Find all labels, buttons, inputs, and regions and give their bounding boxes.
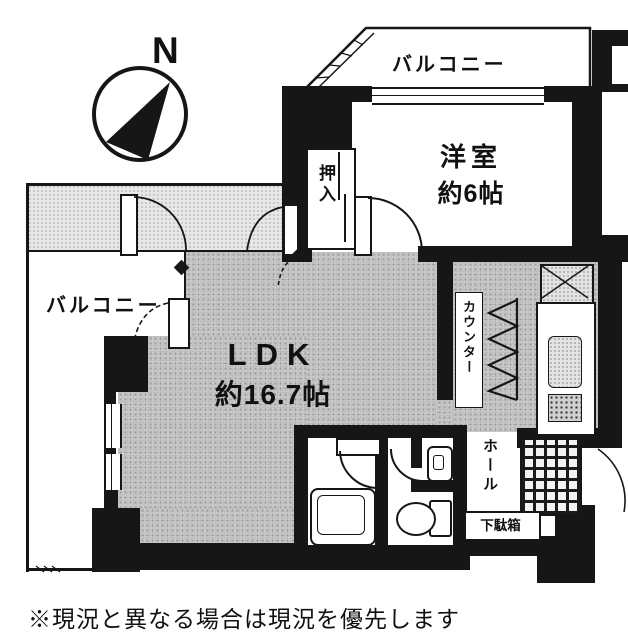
wall-segment xyxy=(308,545,470,570)
kitchen-unit xyxy=(536,302,596,436)
floorplan-canvas: 押入 カウンター ホール 下駄箱 N バルコニー バルコニー 洋室 約6帖 LD… xyxy=(0,0,628,640)
wall-notch xyxy=(612,46,628,84)
wall-segment xyxy=(104,490,118,508)
wall-segment xyxy=(598,262,622,448)
balcony-top-label: バルコニー xyxy=(392,48,507,77)
kitchen-sink xyxy=(548,336,582,388)
window xyxy=(104,454,122,490)
toilet-bowl xyxy=(396,502,436,536)
wall-segment xyxy=(572,235,628,262)
ldk-floor xyxy=(186,252,306,336)
shoe-cabinet-label: 下駄箱 xyxy=(464,511,537,537)
western-room-size: 約6帖 xyxy=(438,174,505,210)
ldk-name: LDK xyxy=(228,337,319,373)
western-room-name: 洋室 xyxy=(440,137,502,174)
wall-segment xyxy=(104,392,116,404)
door-leaf xyxy=(120,194,138,256)
wall-segment xyxy=(308,425,453,438)
balcony-outline xyxy=(26,183,29,572)
wall-segment xyxy=(140,543,308,570)
sliding-door-line xyxy=(344,194,346,242)
sliding-door-line xyxy=(338,152,340,200)
kitchen-stove xyxy=(548,394,582,422)
wall-segment xyxy=(294,425,308,545)
disclaimer-caption: ※現況と異なる場合は現況を優先します xyxy=(28,600,460,634)
bathtub-outer xyxy=(310,488,376,546)
ldk-label-block: LDK 約16.7帖 xyxy=(168,334,378,416)
washlet-basin xyxy=(427,446,453,482)
door-leaf xyxy=(336,438,381,456)
washlet-basin-inner xyxy=(433,455,444,470)
ldk-floor xyxy=(140,508,294,543)
upper-walkway-floor xyxy=(28,185,300,252)
door-arc xyxy=(368,198,422,252)
western-room-label-block: 洋室 約6帖 xyxy=(398,140,544,206)
wall-segment xyxy=(104,336,148,392)
window xyxy=(372,87,544,105)
window xyxy=(104,404,122,448)
wall-segment xyxy=(572,102,602,235)
wall-segment xyxy=(92,508,140,572)
refrigerator-space xyxy=(540,264,594,304)
balcony-left-label: バルコニー xyxy=(46,289,161,318)
entrance-door-arc xyxy=(598,449,625,512)
balcony-outline xyxy=(28,250,300,252)
balcony-outline xyxy=(28,183,300,186)
counter-label: カウンター xyxy=(459,300,478,375)
hall-label: ホール xyxy=(479,438,500,495)
wall-segment xyxy=(300,86,372,102)
door-arc xyxy=(340,451,377,488)
ldk-floor xyxy=(118,425,294,508)
bathtub-inner xyxy=(317,495,365,535)
closet-label: 押入 xyxy=(313,164,338,206)
compass-icon xyxy=(94,68,186,160)
balcony-outline xyxy=(26,568,94,571)
north-label: N xyxy=(152,30,179,72)
wall-segment xyxy=(437,258,453,400)
entrance-tile xyxy=(520,438,582,516)
door-leaf xyxy=(354,196,372,256)
ldk-size: 約16.7帖 xyxy=(215,373,332,413)
wall-segment xyxy=(411,438,422,468)
